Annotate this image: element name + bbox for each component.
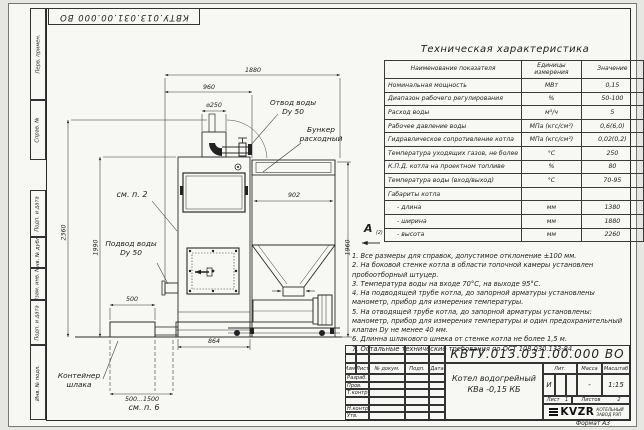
tech-table-header-row: Наименование показателя Единицы измерени… [385, 61, 644, 79]
row-value: 1380 [581, 201, 643, 215]
col-header-data: Дата [429, 363, 445, 374]
col-header-list: Лист [356, 363, 369, 374]
product-name-line2: КВа -0,15 КБ [467, 385, 520, 395]
row-label-prov: Пров. [345, 382, 369, 389]
product-name-line1: Котел водогрейный [452, 374, 536, 384]
rev-cell [405, 354, 429, 363]
rev-cell [369, 354, 405, 363]
note-item: 1. Все размеры для справок, допустимое о… [352, 252, 630, 261]
row-unit: м³/ч [522, 106, 582, 120]
row-value: 0,6(6,0) [581, 119, 643, 133]
sig-cell [429, 374, 445, 382]
see-item-6-label: см. п. 6 [120, 403, 168, 413]
otvod-label-line2: Dy 50 [262, 108, 324, 117]
table-row: Температура воды (вход/выход)°С70-95 [385, 174, 644, 188]
col-header-name: Наименование показателя [385, 61, 522, 79]
company-cell: KVZR КОТЕЛЬНЫЙ ЗАВОД РЭП [543, 404, 630, 420]
row-label-tkontr: Т.контр. [345, 389, 369, 397]
sheets-cell: Листов 2 [572, 396, 630, 404]
table-row: Температура уходящих газов, не более°С25… [385, 146, 644, 160]
technical-notes: 1. Все размеры для справок, допустимое о… [352, 252, 630, 354]
sheets-value: 2 [617, 397, 620, 403]
row-name: Габариты котла [385, 187, 522, 201]
row-name: Температура воды (вход/выход) [385, 174, 522, 188]
table-row: - высотамм2260 [385, 228, 644, 242]
view-a-marker: А [364, 222, 373, 235]
row-value: 0,02(0,2) [581, 133, 643, 147]
sig-cell [429, 412, 445, 420]
sig-cell [405, 405, 429, 412]
see-item-2-label: см. п. 2 [108, 190, 156, 200]
bunker-label-line2: расходный [290, 135, 352, 144]
row-value [581, 187, 643, 201]
table-row: Гидравлическое сопротивление котлаМПа (к… [385, 133, 644, 147]
table-row: - ширинамм1880 [385, 214, 644, 228]
col-header-dokum: № докум. [369, 363, 405, 374]
row-name: Номинальная мощность [385, 79, 522, 93]
sig-cell [369, 382, 405, 389]
row-unit: °С [522, 146, 582, 160]
company-name: КОТЕЛЬНЫЙ ЗАВОД РЭП [596, 407, 623, 418]
note-item: 6. Длинна шлакового шнека от стенке котл… [352, 335, 630, 344]
row-unit: МПа (кгс/см²) [522, 133, 582, 147]
slag-container-view [110, 322, 178, 391]
rev-cell [405, 345, 429, 354]
podvod-label-line2: Dy 50 [100, 249, 162, 258]
table-row: Габариты котла [385, 187, 644, 201]
dim-container-width: 500 [117, 296, 147, 303]
row-unit: МВт [522, 79, 582, 93]
col-header-units: Единицы измерения [522, 61, 582, 79]
row-name: Расход воды [385, 106, 522, 120]
sig-cell [405, 382, 429, 389]
rev-cell [429, 345, 445, 354]
dim-container-range: 500...1500 [112, 396, 172, 403]
sig-cell [369, 389, 405, 397]
row-name: - длина [385, 201, 522, 215]
sig-cell [429, 382, 445, 389]
table-row: Диапазон рабочего регулирования%50-100 [385, 92, 644, 106]
lit-cell-3 [566, 374, 577, 396]
dim-height-total: 2360 [61, 218, 68, 248]
table-row: К.П.Д. котла на проектном топливе%80 [385, 160, 644, 174]
dim-height-boiler: 1990 [93, 233, 100, 263]
drawing-sheet-page: Перв. примен. Справ. № Подп. и дата Инв.… [0, 0, 644, 430]
row-unit: МПа (кгс/см²) [522, 119, 582, 133]
slag-container-label: Контейнер шлака [50, 372, 108, 390]
sheet-label: Лист [547, 397, 560, 403]
dim-width-boiler: 960 [194, 84, 224, 91]
row-unit: % [522, 92, 582, 106]
sig-cell [405, 397, 429, 405]
row-name: Температура уходящих газов, не более [385, 146, 522, 160]
kvzr-logo-icon [549, 407, 558, 418]
row-value: 80 [581, 160, 643, 174]
view-a-sub: (2) [376, 231, 383, 236]
row-name: - ширина [385, 214, 522, 228]
row-label-utv: Утв. [345, 412, 369, 420]
row-name: Диапазон рабочего регулирования [385, 92, 522, 106]
row-name: Рабочее давление воды [385, 119, 522, 133]
lit-header: Лит. [543, 363, 577, 374]
row-name: К.П.Д. котла на проектном топливе [385, 160, 522, 174]
row-value: 250 [581, 146, 643, 160]
bunker-label: Бункер расходный [290, 126, 352, 144]
rev-cell [345, 345, 356, 354]
note-item: 5. На отводящей трубе котла, до запорной… [352, 308, 630, 336]
mass-value-cell: - [577, 374, 602, 396]
lit-value-cell: И [543, 374, 555, 396]
dim-chimney-dia: ⌀250 [200, 102, 228, 109]
col-header-podp: Подп. [405, 363, 429, 374]
scale-value-cell: 1:15 [602, 374, 630, 396]
sig-cell [429, 397, 445, 405]
row-value: 70-95 [581, 174, 643, 188]
table-row: Рабочее давление водыМПа (кгс/см²)0,6(6,… [385, 119, 644, 133]
row-name: - высота [385, 228, 522, 242]
row-value: 0,15 [581, 79, 643, 93]
dim-width-total: 1880 [238, 67, 268, 74]
table-row: - длинамм1380 [385, 201, 644, 215]
sig-cell [405, 389, 429, 397]
product-name-cell: Котел водогрейный КВа -0,15 КБ [445, 363, 543, 420]
row-value: 5 [581, 106, 643, 120]
tech-characteristics-table: Наименование показателя Единицы измерени… [384, 60, 644, 242]
dimension-lines [68, 75, 380, 394]
sig-cell [429, 405, 445, 412]
sig-cell [405, 412, 429, 420]
sig-cell [369, 374, 405, 382]
rev-cell [356, 354, 369, 363]
table-row: Номинальная мощностьМВт0,15 [385, 79, 644, 93]
row-value: 2260 [581, 228, 643, 242]
row-value: 50-100 [581, 92, 643, 106]
company-logo: KVZR КОТЕЛЬНЫЙ ЗАВОД РЭП [549, 406, 623, 418]
row-unit: мм [522, 201, 582, 215]
company-name-line2: ЗАВОД РЭП [596, 412, 623, 417]
sheet-value: 1 [565, 397, 568, 403]
sig-cell [405, 374, 429, 382]
otvod-vody-label: Отвод воды Dy 50 [262, 99, 324, 117]
dim-boiler-depth: 864 [199, 338, 229, 345]
sig-cell [369, 405, 405, 412]
format-label: Формат А3 [548, 420, 638, 427]
podvod-vody-label: Подвод воды Dy 50 [100, 240, 162, 258]
row-name: Гидравлическое сопротивление котла [385, 133, 522, 147]
boiler-front-view [162, 114, 267, 337]
col-header-value: Значение [581, 61, 643, 79]
rev-cell [345, 354, 356, 363]
container-label-line2: шлака [50, 381, 108, 390]
row-unit: мм [522, 228, 582, 242]
mass-header: Масса [577, 363, 602, 374]
col-header-izm: Изм. [345, 363, 356, 374]
table-row: Расход водым³/ч5 [385, 106, 644, 120]
dim-bunker-width: 902 [279, 192, 309, 199]
row-label-razrab: Разраб. [345, 374, 369, 382]
dim-height-bunker: 1960 [345, 233, 352, 263]
scale-header: Масштаб [602, 363, 630, 374]
row-unit [522, 187, 582, 201]
rev-cell [356, 345, 369, 354]
note-item: 4. На подводящей трубе котла, до запорно… [352, 289, 630, 308]
row-value: 1880 [581, 214, 643, 228]
note-item: 2. На боковой стенке котла в области топ… [352, 261, 630, 280]
sig-cell [429, 389, 445, 397]
lit-cell-2 [555, 374, 566, 396]
row-label-blank [345, 397, 369, 405]
sig-cell [369, 412, 405, 420]
title-block-doc-number: КВТУ.013.031.00.000 ВО [445, 345, 630, 363]
row-unit: °С [522, 174, 582, 188]
tech-table-title: Техническая характеристика [390, 44, 620, 55]
note-item: 3. Температура воды на входе 70°С, на вы… [352, 280, 630, 289]
sig-cell [369, 397, 405, 405]
kvzr-logo-text: KVZR [560, 406, 594, 418]
sheets-label: Листов [581, 397, 600, 403]
row-unit: % [522, 160, 582, 174]
row-unit: мм [522, 214, 582, 228]
rev-cell [369, 345, 405, 354]
row-label-nkontr: Н.контр. [345, 405, 369, 412]
rev-cell [429, 354, 445, 363]
sheet-cell: Лист 1 [543, 396, 572, 404]
